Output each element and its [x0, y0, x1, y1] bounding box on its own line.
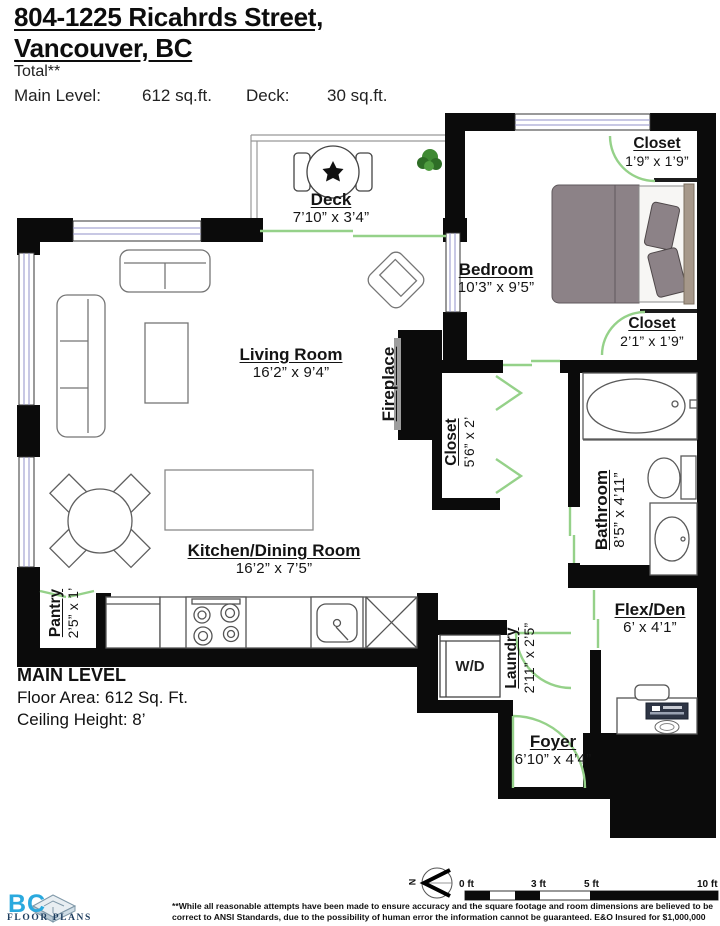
disclaimer-text: **While all reasonable attempts have bee… — [172, 901, 720, 922]
page-title: 804-1225 Ricahrds Street, Vancouver, BC — [14, 2, 323, 64]
pocket-door-bathroom — [570, 507, 574, 563]
bifold-door-closet-hall-bottom — [496, 459, 521, 493]
room-label-closet-top: Closet 1’9” x 1’9” — [604, 136, 710, 169]
level-name: MAIN LEVEL — [17, 664, 188, 687]
dining-table — [68, 489, 132, 553]
window-left-lower — [19, 457, 34, 567]
sliding-door-deck — [260, 231, 446, 236]
total-note: Total** — [14, 63, 60, 81]
room-label-kitchen-dining: Kitchen/Dining Room 16’2” x 7’5” — [174, 542, 374, 578]
north-label: N — [407, 879, 417, 886]
logo-floorplans-text: FLOOR PLANS — [7, 913, 92, 923]
bed — [552, 184, 694, 304]
main-level-label: Main Level: — [14, 86, 101, 106]
room-label-bedroom: Bedroom 10’3” x 9’5” — [444, 261, 548, 297]
scale-bar — [465, 891, 718, 900]
title-line1: 804-1225 Ricahrds Street, — [14, 2, 323, 32]
room-label-living-room: Living Room 16’2” x 9’4” — [226, 346, 356, 382]
ceiling-height: Ceiling Height: 8’ — [17, 709, 188, 731]
fridge — [106, 597, 160, 648]
room-label-deck: Deck 7’10” x 3’4” — [267, 191, 395, 227]
room-label-closet-hall: Closet 5’6” x 2’ — [444, 392, 480, 492]
title-line2: Vancouver, BC — [14, 33, 192, 63]
room-label-foyer: Foyer 6’10” x 4’4” — [498, 733, 608, 769]
coffee-table — [145, 323, 188, 403]
scale-10ft: 10 ft — [697, 879, 718, 890]
scale-3ft: 3 ft — [531, 879, 546, 890]
plant-icon — [417, 149, 442, 171]
kitchen-sink — [311, 597, 363, 648]
deck-label: Deck: — [246, 86, 289, 106]
floor-area: Floor Area: 612 Sq. Ft. — [17, 687, 188, 709]
scale-0ft: 0 ft — [459, 879, 474, 890]
deck-value: 30 sq.ft. — [327, 86, 387, 106]
room-label-laundry: Laundry 2’11” x 2’5” — [504, 610, 538, 706]
headboard — [684, 184, 694, 304]
washer-dryer-label: W/D — [440, 635, 500, 697]
pocket-door-bedroom — [503, 361, 560, 365]
main-level-value: 612 sq.ft. — [142, 86, 212, 106]
level-info: MAIN LEVEL Floor Area: 612 Sq. Ft. Ceili… — [17, 664, 188, 731]
toilet — [648, 456, 696, 499]
window-left-upper — [19, 253, 34, 405]
room-label-bathroom: Bathroom 8’5” x 4’11” — [593, 452, 631, 568]
bathroom-sink — [650, 503, 697, 575]
dishwasher — [366, 597, 417, 648]
sofa — [57, 295, 105, 437]
north-arrow-icon — [422, 868, 452, 898]
kitchen-island — [165, 470, 313, 530]
bathtub — [583, 373, 697, 439]
floor-plan-page: 804-1225 Ricahrds Street, Vancouver, BC … — [0, 0, 720, 926]
bifold-door-closet-hall-top — [496, 376, 521, 410]
room-label-fireplace: Fireplace — [380, 332, 398, 436]
armchair — [365, 249, 427, 311]
stove — [186, 597, 246, 648]
room-label-closet-bedroom: Closet 2’1” x 1’9” — [599, 316, 705, 349]
window-bedroom-top — [515, 114, 650, 130]
loveseat — [120, 250, 210, 292]
room-label-flex-den: Flex/Den 6’ x 4’1” — [598, 601, 702, 637]
room-label-pantry: Pantry 2’5” x 1’ — [48, 571, 82, 655]
window-top-left — [73, 221, 201, 241]
scale-5ft: 5 ft — [584, 879, 599, 890]
